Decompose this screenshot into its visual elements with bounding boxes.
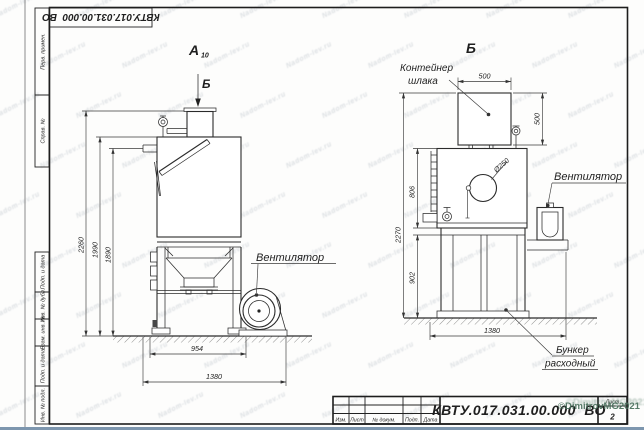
side-col-label: Перв. примен. bbox=[41, 33, 47, 70]
tb-sheet-number: 2 bbox=[609, 413, 615, 422]
inverted-stamp: КВТУ.017.031.00.000 ВО bbox=[42, 8, 160, 27]
callout-fan-side: Вентилятор bbox=[546, 171, 626, 207]
dim-container-height: 500 bbox=[533, 113, 542, 125]
drawing-scan: КВТУ.017.031.00.000 ВО Перв. примен. Спр… bbox=[0, 0, 644, 430]
tb-label-list: Лист bbox=[349, 418, 364, 424]
view-a-label-sub: 10 bbox=[201, 53, 209, 60]
dim-pipe-height: 1890 bbox=[104, 247, 113, 263]
side-col-label: Взам. инв. № bbox=[41, 315, 47, 349]
view-b-label: Б bbox=[466, 40, 476, 56]
drawing-sheet: Nadom-lev.ruNadom-lev.ruNadom-lev.ruNado… bbox=[0, 0, 644, 430]
tb-label-podp: Подп. bbox=[405, 418, 419, 424]
dim-frame-width: 954 bbox=[191, 344, 203, 353]
tb-label-izm: Изм. bbox=[335, 418, 346, 424]
side-col-label: Подп. и дата bbox=[41, 255, 47, 289]
dim-total-width: 1380 bbox=[206, 372, 222, 381]
view-b-arrow-label: Б bbox=[202, 77, 211, 91]
view-a-label: А bbox=[188, 42, 199, 58]
view-b: Б bbox=[394, 40, 627, 370]
side-col-label: Подп. и дата bbox=[41, 349, 47, 383]
callout-fan-side-text: Вентилятор bbox=[554, 171, 622, 183]
machine-side bbox=[404, 93, 597, 325]
dim-total-height: 2260 bbox=[77, 237, 86, 254]
side-col-label: Инв. № подл. bbox=[41, 388, 47, 422]
dim-total-width-b: 1380 bbox=[484, 326, 500, 335]
dim-body-height: 1990 bbox=[91, 242, 100, 258]
callout-hopper-line2: расходный bbox=[544, 359, 596, 370]
dim-container-width: 500 bbox=[479, 72, 491, 81]
slag-container bbox=[458, 93, 511, 145]
dim-total-height-b: 2270 bbox=[394, 227, 403, 244]
callout-container-line2: шлака bbox=[408, 76, 438, 87]
tb-label-doc: № докум. bbox=[372, 418, 395, 424]
dim-frame-height-b: 902 bbox=[408, 272, 417, 284]
dim-body-height-b: 806 bbox=[408, 186, 417, 198]
tb-label-data: Дата bbox=[423, 418, 438, 424]
copyright-watermark: ©DimitrovMG2021 bbox=[558, 401, 640, 412]
view-a: А 10 Б bbox=[77, 42, 337, 386]
view-b-arrow: Б bbox=[195, 74, 211, 107]
fan-side bbox=[527, 203, 568, 250]
callout-fan-front-text: Вентилятор bbox=[256, 252, 324, 264]
valve-wheel bbox=[159, 118, 168, 127]
callout-container-line1: Контейнер bbox=[400, 63, 453, 74]
side-column: Перв. примен. Справ. № Подп. и дата Инв.… bbox=[35, 8, 49, 424]
side-col-label: Справ. № bbox=[41, 118, 47, 143]
stamp-designation: КВТУ.017.031.00.000 ВО bbox=[42, 11, 160, 22]
callout-hopper-line1: Бункер bbox=[556, 345, 589, 356]
